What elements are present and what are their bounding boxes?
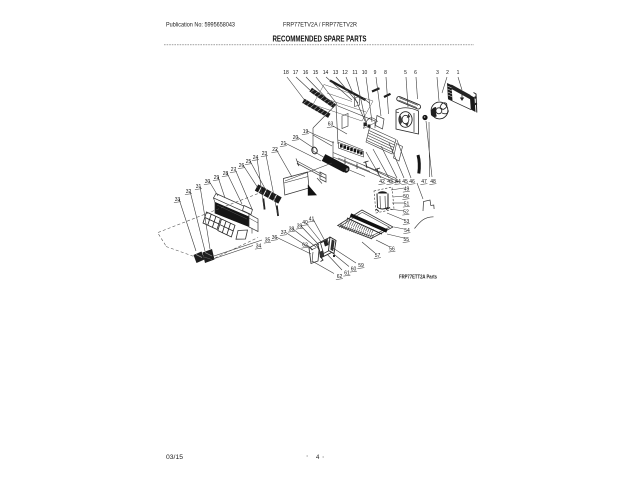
svg-text:5: 5 (404, 70, 407, 76)
svg-text:9: 9 (374, 70, 377, 76)
svg-text:17: 17 (293, 70, 299, 76)
svg-text:11: 11 (352, 70, 357, 76)
svg-text:FRP77ETT2A Parts: FRP77ETT2A Parts (399, 275, 437, 281)
svg-text:8: 8 (384, 70, 387, 76)
svg-text:2: 2 (446, 70, 449, 76)
svg-text:12: 12 (342, 70, 348, 76)
svg-text:RECOMMENDED SPARE PARTS: RECOMMENDED SPARE PARTS (273, 34, 367, 44)
svg-text:FRP77ETV2A / FRP77ETV2R: FRP77ETV2A / FRP77ETV2R (283, 23, 358, 29)
svg-text:15: 15 (313, 70, 319, 76)
svg-text:10: 10 (362, 70, 368, 76)
svg-text:14: 14 (323, 70, 329, 76)
svg-text:6: 6 (414, 70, 417, 76)
svg-text:Publication No: 5995658043: Publication No: 5995658043 (166, 23, 236, 29)
svg-text:03/15: 03/15 (166, 455, 184, 461)
svg-text:3: 3 (436, 70, 439, 76)
svg-text:16: 16 (303, 70, 309, 76)
svg-text:1: 1 (457, 70, 460, 76)
svg-text:13: 13 (333, 70, 339, 76)
svg-text:18: 18 (283, 70, 289, 76)
